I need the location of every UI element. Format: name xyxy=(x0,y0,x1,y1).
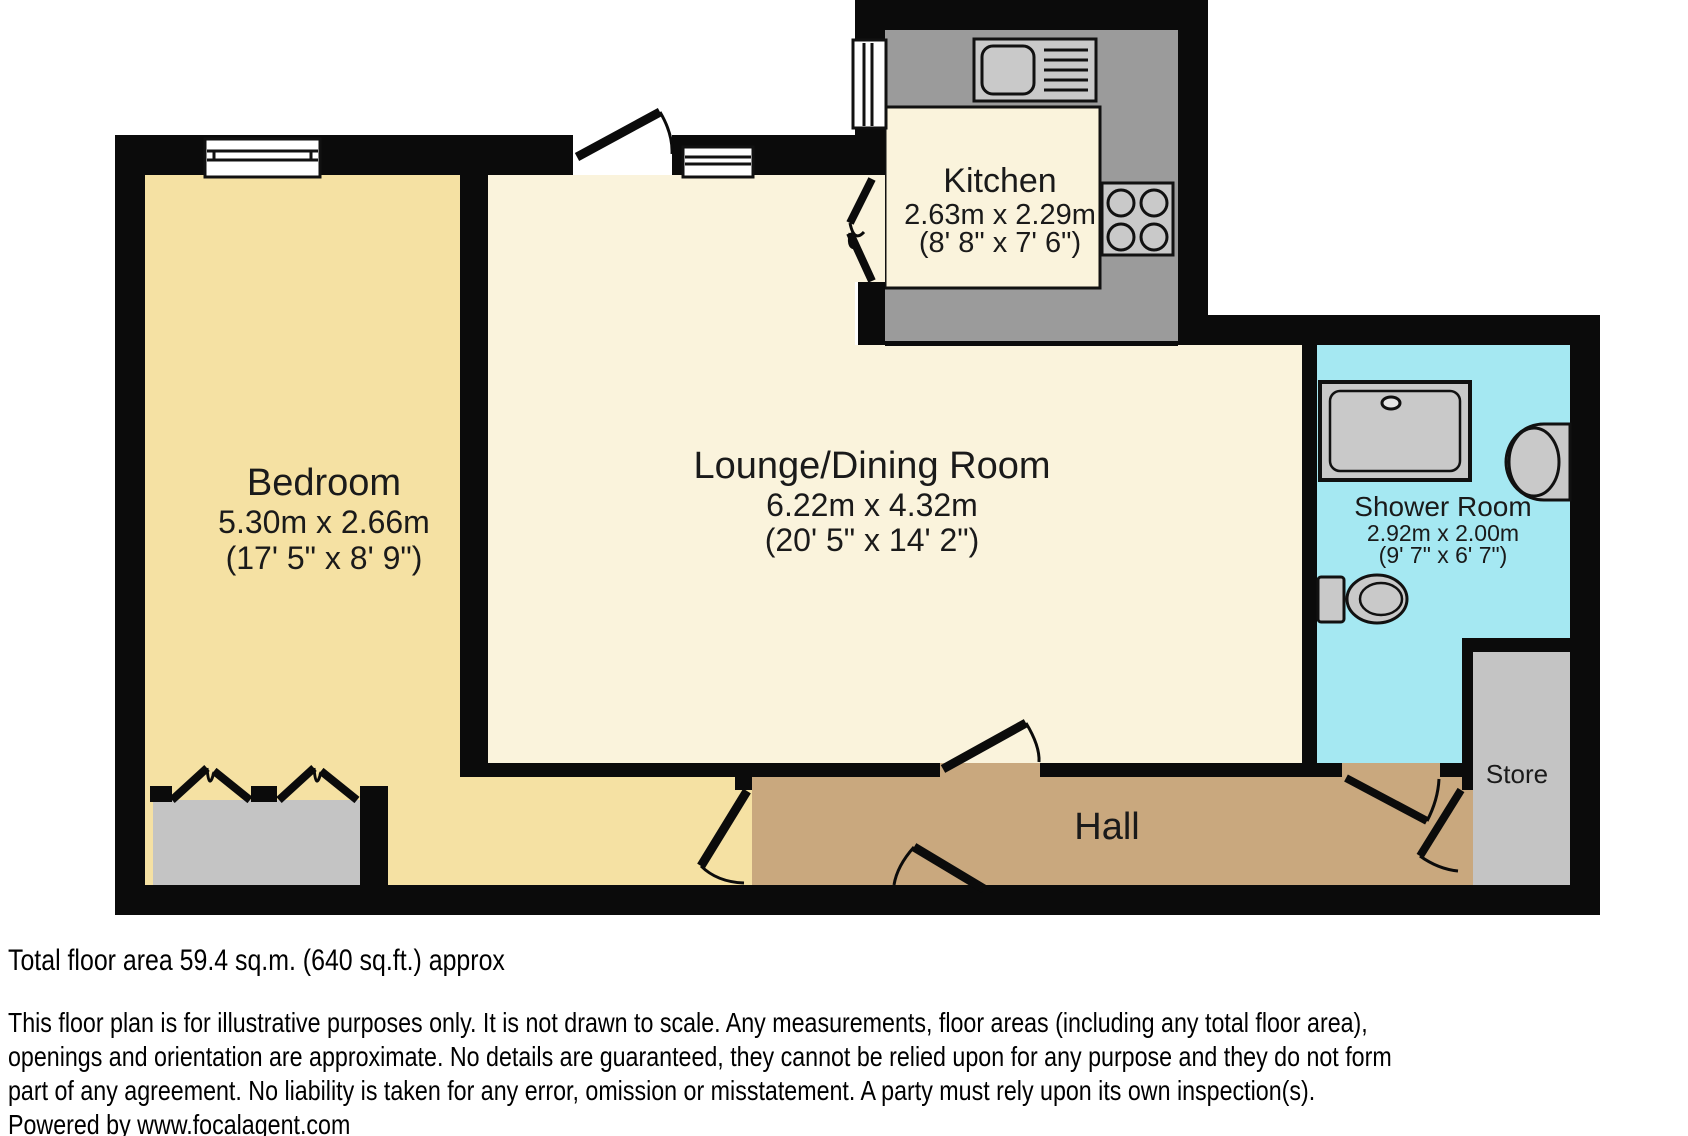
wall-kitchen-left-stub xyxy=(858,282,885,345)
wall-lounge-hall-1 xyxy=(460,763,940,777)
wall-kitchen-right xyxy=(1178,0,1208,345)
wall-store-left xyxy=(1462,638,1473,790)
floor-plan: Bedroom 5.30m x 2.66m (17' 5" x 8' 9") L… xyxy=(0,0,1688,930)
wall-bedroom-lounge xyxy=(460,175,488,777)
bedroom-extension-floor xyxy=(460,777,752,885)
wall-lounge-hall-2 xyxy=(1040,763,1302,777)
wall-store-top xyxy=(1462,638,1570,652)
shower-imperial: (9' 7" x 6' 7") xyxy=(1379,542,1508,568)
bedroom-imperial: (17' 5" x 8' 9") xyxy=(226,540,423,576)
wall-wardrobe-right-stub xyxy=(360,786,388,885)
kitchen-label: Kitchen xyxy=(943,162,1056,200)
kitchen-imperial: (8' 8" x 7' 6") xyxy=(919,227,1081,259)
hob-ring xyxy=(1108,224,1134,250)
hall-label: Hall xyxy=(1074,806,1139,848)
wash-basin xyxy=(1509,428,1559,496)
kitchen-window xyxy=(853,40,886,128)
wall-kitchen-top xyxy=(855,0,1208,30)
kitchen-sink-basin xyxy=(982,46,1034,94)
disclaimer-line: openings and orientation are approximate… xyxy=(8,1040,1392,1074)
wall-right-section-top xyxy=(1208,315,1600,345)
bedroom-label: Bedroom xyxy=(247,462,401,504)
kitchen-counter-edge xyxy=(885,341,1178,346)
shower-floor-lower xyxy=(1317,638,1462,763)
wall-hall-bedroom-jamb xyxy=(735,777,752,790)
disclaimer-line: This floor plan is for illustrative purp… xyxy=(8,1006,1392,1040)
lounge-imperial: (20' 5" x 14' 2") xyxy=(765,522,980,558)
shower-door-gap xyxy=(1342,763,1440,777)
wall-left xyxy=(115,135,145,915)
disclaimer-line: part of any agreement. No liability is t… xyxy=(8,1074,1392,1108)
wall-right xyxy=(1570,345,1600,915)
disclaimer-line: Powered by www.focalagent.com xyxy=(8,1108,1392,1136)
lounge-metric: 6.22m x 4.32m xyxy=(766,487,978,523)
store-label: Store xyxy=(1486,759,1548,789)
wall-shower-left xyxy=(1302,345,1317,763)
bedroom-window xyxy=(205,139,320,177)
wall-bottom xyxy=(115,885,1600,915)
wall-wardrobe-post-mid xyxy=(251,786,277,802)
wall-wardrobe-post-left xyxy=(150,786,172,802)
floor-plan-page: Bedroom 5.30m x 2.66m (17' 5" x 8' 9") L… xyxy=(0,0,1688,1136)
hob-ring xyxy=(1108,190,1134,216)
store-door-gap xyxy=(1462,790,1473,885)
shower-drain xyxy=(1382,397,1400,409)
lounge-window xyxy=(683,147,753,177)
toilet-cistern xyxy=(1318,577,1344,622)
lounge-label: Lounge/Dining Room xyxy=(693,445,1050,487)
hob-ring xyxy=(1141,224,1167,250)
total-floor-area: Total floor area 59.4 sq.m. (640 sq.ft.)… xyxy=(8,944,505,978)
hob-ring xyxy=(1141,190,1167,216)
wall-shower-hall-jamb xyxy=(1302,763,1342,777)
wardrobe xyxy=(153,800,373,885)
shower-label: Shower Room xyxy=(1354,491,1531,522)
bedroom-metric: 5.30m x 2.66m xyxy=(218,504,430,540)
disclaimer: This floor plan is for illustrative purp… xyxy=(8,1006,1392,1136)
